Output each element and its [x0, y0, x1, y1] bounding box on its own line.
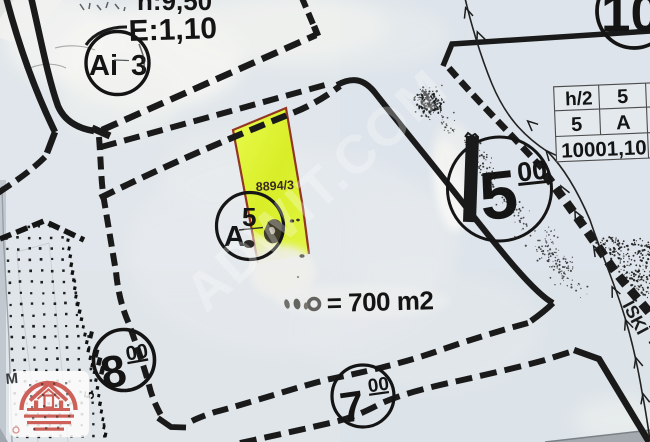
svg-text:M: M — [5, 370, 19, 388]
svg-text:10: 10 — [601, 0, 650, 43]
svg-text:E:1,10: E:1,10 — [128, 12, 217, 48]
svg-text:= 700 m2: = 700 m2 — [326, 285, 433, 318]
svg-text:5: 5 — [571, 114, 583, 136]
svg-text:A: A — [616, 112, 631, 135]
svg-text:10001,10: 10001,10 — [561, 136, 647, 162]
svg-text:5: 5 — [617, 86, 629, 108]
svg-text:Ai: Ai — [89, 50, 118, 82]
svg-text:h/2: h/2 — [565, 88, 593, 110]
svg-text:5: 5 — [476, 156, 522, 236]
